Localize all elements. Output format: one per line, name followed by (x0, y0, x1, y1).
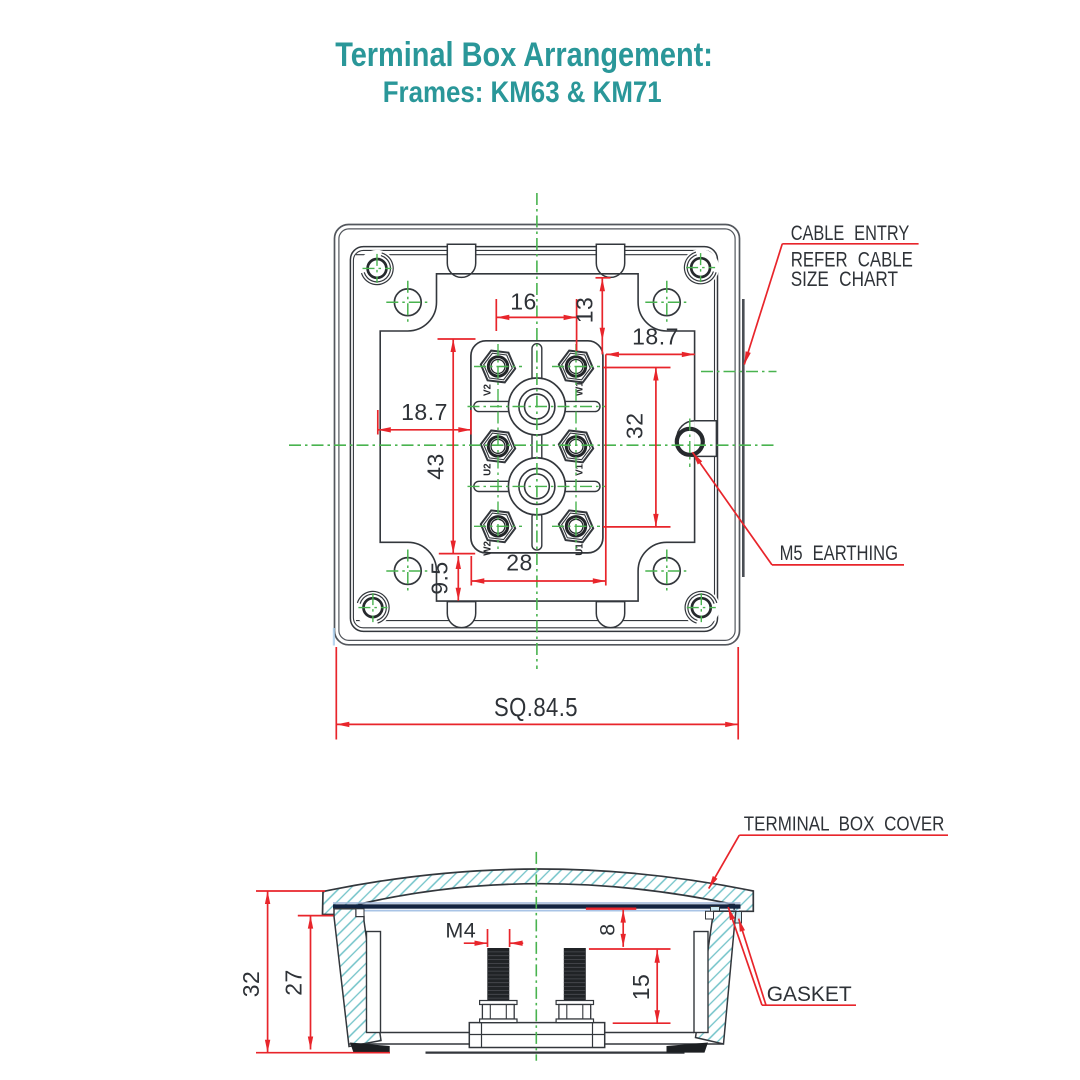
svg-text:28: 28 (506, 550, 533, 576)
svg-text:U2: U2 (483, 463, 494, 476)
svg-text:CABLE ENTRY: CABLE ENTRY (791, 221, 910, 245)
svg-text:43: 43 (423, 453, 449, 480)
svg-text:V2: V2 (483, 383, 494, 396)
svg-text:U1: U1 (575, 543, 586, 556)
svg-text:W2: W2 (483, 541, 494, 556)
svg-text:M5 EARTHING: M5 EARTHING (780, 541, 898, 565)
svg-text:TERMINAL BOX COVER: TERMINAL BOX COVER (744, 813, 945, 836)
svg-text:Frames: KM63 & KM71: Frames: KM63 & KM71 (383, 76, 662, 109)
svg-text:SIZE CHART: SIZE CHART (791, 267, 898, 291)
svg-text:18.7: 18.7 (632, 324, 679, 350)
svg-text:M4: M4 (445, 919, 476, 943)
svg-text:16: 16 (510, 289, 537, 315)
svg-text:32: 32 (238, 971, 264, 998)
svg-text:SQ.84.5: SQ.84.5 (494, 692, 578, 722)
svg-text:15: 15 (628, 974, 654, 1001)
svg-text:32: 32 (622, 413, 648, 440)
svg-text:9.5: 9.5 (427, 561, 453, 594)
svg-text:8: 8 (596, 923, 620, 935)
svg-text:13: 13 (572, 297, 598, 324)
svg-text:Terminal Box Arrangement:: Terminal Box Arrangement: (335, 36, 713, 74)
svg-text:27: 27 (281, 969, 307, 996)
svg-text:18.7: 18.7 (401, 399, 448, 425)
svg-text:GASKET: GASKET (767, 982, 852, 1006)
